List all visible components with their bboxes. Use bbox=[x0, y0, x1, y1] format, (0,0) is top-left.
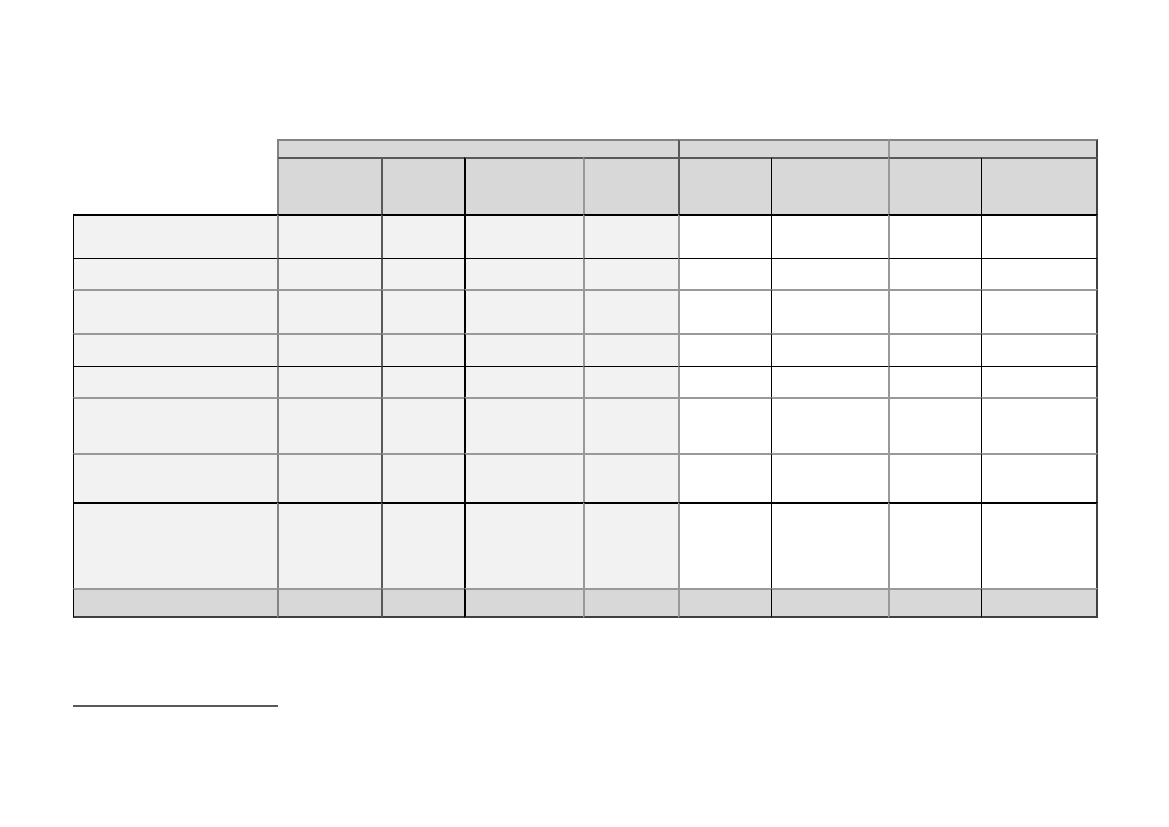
body-cell bbox=[381, 289, 464, 333]
body-cell bbox=[277, 258, 381, 289]
footer-cell bbox=[888, 588, 981, 618]
row-header-cell bbox=[73, 214, 277, 258]
body-cell bbox=[678, 366, 771, 397]
body-cell bbox=[583, 214, 678, 258]
body-cell bbox=[771, 453, 888, 502]
body-cell bbox=[381, 366, 464, 397]
body-cell bbox=[381, 258, 464, 289]
body-cell bbox=[678, 289, 771, 333]
body-cell bbox=[678, 397, 771, 453]
body-cell bbox=[981, 453, 1098, 502]
body-cell bbox=[277, 289, 381, 333]
row-header-cell bbox=[73, 366, 277, 397]
column-header-cell-2 bbox=[381, 157, 464, 214]
row-header-cell bbox=[73, 453, 277, 502]
body-cell bbox=[277, 333, 381, 366]
footer-cell bbox=[678, 588, 771, 618]
footer-cell bbox=[771, 588, 888, 618]
row-header-cell bbox=[73, 397, 277, 453]
column-header-cell-5 bbox=[678, 157, 771, 214]
footer-row-header-cell bbox=[73, 588, 277, 618]
body-cell bbox=[888, 258, 981, 289]
body-cell bbox=[583, 453, 678, 502]
column-header-cell-1 bbox=[277, 157, 381, 214]
footer-cell bbox=[583, 588, 678, 618]
body-cell bbox=[583, 258, 678, 289]
body-cell bbox=[464, 502, 583, 588]
body-cell bbox=[981, 502, 1098, 588]
body-cell bbox=[888, 502, 981, 588]
body-cell bbox=[771, 289, 888, 333]
body-cell bbox=[888, 289, 981, 333]
body-cell bbox=[981, 214, 1098, 258]
document-page bbox=[0, 0, 1169, 827]
body-cell bbox=[888, 366, 981, 397]
body-cell bbox=[981, 333, 1098, 366]
body-cell bbox=[981, 366, 1098, 397]
body-cell bbox=[583, 289, 678, 333]
body-cell bbox=[277, 397, 381, 453]
body-cell bbox=[981, 289, 1098, 333]
body-cell bbox=[981, 258, 1098, 289]
footer-cell bbox=[277, 588, 381, 618]
body-cell bbox=[464, 453, 583, 502]
body-cell bbox=[464, 333, 583, 366]
body-cell bbox=[583, 333, 678, 366]
body-cell bbox=[583, 397, 678, 453]
body-cell bbox=[277, 214, 381, 258]
body-cell bbox=[583, 366, 678, 397]
row-header-cell bbox=[73, 289, 277, 333]
body-cell bbox=[583, 502, 678, 588]
row-header-cell bbox=[73, 258, 277, 289]
row-header-cell bbox=[73, 502, 277, 588]
column-header-cell-3 bbox=[464, 157, 583, 214]
header-group-cell-3 bbox=[888, 139, 1098, 157]
body-cell bbox=[888, 397, 981, 453]
column-header-cell-6 bbox=[771, 157, 888, 214]
header-corner-void bbox=[73, 139, 277, 157]
body-cell bbox=[277, 453, 381, 502]
body-cell bbox=[381, 502, 464, 588]
body-cell bbox=[464, 289, 583, 333]
body-cell bbox=[771, 366, 888, 397]
body-cell bbox=[277, 366, 381, 397]
body-cell bbox=[464, 366, 583, 397]
column-header-cell-7 bbox=[888, 157, 981, 214]
body-cell bbox=[678, 333, 771, 366]
footnote-separator-rule bbox=[73, 705, 278, 707]
body-cell bbox=[381, 333, 464, 366]
body-cell bbox=[771, 397, 888, 453]
body-cell bbox=[771, 214, 888, 258]
header-corner-void bbox=[73, 157, 277, 214]
body-cell bbox=[888, 453, 981, 502]
header-group-cell-2 bbox=[678, 139, 888, 157]
body-cell bbox=[678, 453, 771, 502]
body-cell bbox=[381, 453, 464, 502]
header-group-cell-1 bbox=[277, 139, 678, 157]
footer-cell bbox=[981, 588, 1098, 618]
body-cell bbox=[381, 214, 464, 258]
body-cell bbox=[464, 258, 583, 289]
body-cell bbox=[277, 502, 381, 588]
body-cell bbox=[464, 397, 583, 453]
body-cell bbox=[678, 502, 771, 588]
column-header-cell-8 bbox=[981, 157, 1098, 214]
body-cell bbox=[981, 397, 1098, 453]
column-header-cell-4 bbox=[583, 157, 678, 214]
footer-cell bbox=[381, 588, 464, 618]
footer-cell bbox=[464, 588, 583, 618]
body-cell bbox=[678, 214, 771, 258]
row-header-cell bbox=[73, 333, 277, 366]
body-cell bbox=[678, 258, 771, 289]
body-cell bbox=[464, 214, 583, 258]
body-cell bbox=[771, 258, 888, 289]
body-cell bbox=[771, 333, 888, 366]
body-cell bbox=[381, 397, 464, 453]
body-cell bbox=[888, 333, 981, 366]
body-cell bbox=[771, 502, 888, 588]
body-cell bbox=[888, 214, 981, 258]
empty-data-table bbox=[73, 139, 1098, 618]
